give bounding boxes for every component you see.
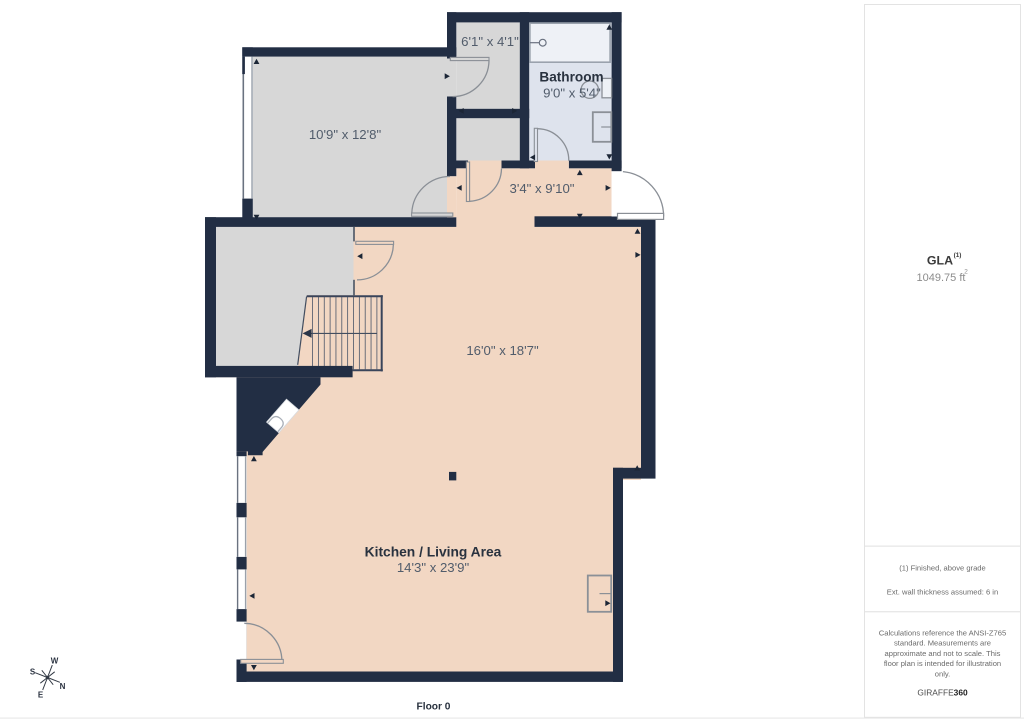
svg-text:1049.75 ft: 1049.75 ft [917, 272, 966, 284]
svg-text:approximate and not to scale.: approximate and not to scale. This [885, 649, 1001, 658]
svg-text:Bathroom: Bathroom [539, 70, 603, 85]
svg-text:Calculations reference the ANS: Calculations reference the ANSI-Z765 [879, 629, 1006, 638]
svg-text:standard. Measurements are: standard. Measurements are [894, 639, 991, 648]
svg-text:W: W [51, 657, 59, 666]
svg-text:3'4" x 9'10": 3'4" x 9'10" [510, 181, 575, 196]
svg-text:2: 2 [964, 269, 968, 276]
svg-text:floor plan is intended for ill: floor plan is intended for illustration [884, 659, 1001, 668]
svg-text:S: S [30, 668, 36, 677]
svg-text:16'0" x 18'7": 16'0" x 18'7" [466, 343, 539, 358]
svg-text:N: N [60, 682, 66, 691]
svg-text:6'1" x 4'1": 6'1" x 4'1" [461, 34, 519, 49]
svg-text:(1): (1) [954, 252, 962, 259]
svg-text:Kitchen / Living Area: Kitchen / Living Area [365, 545, 502, 560]
svg-text:GLA: GLA [927, 254, 953, 268]
svg-text:Floor 0: Floor 0 [417, 702, 451, 713]
svg-text:Ext. wall thickness assumed: 6: Ext. wall thickness assumed: 6 in [887, 588, 998, 597]
svg-text:only.: only. [935, 669, 950, 678]
svg-text:9'0" x 5'4": 9'0" x 5'4" [543, 86, 601, 101]
svg-text:10'9" x 12'8": 10'9" x 12'8" [309, 127, 382, 142]
svg-text:14'3" x 23'9": 14'3" x 23'9" [397, 560, 470, 575]
svg-text:E: E [38, 691, 44, 700]
svg-text:(1) Finished, above grade: (1) Finished, above grade [899, 564, 986, 573]
svg-text:GIRAFFE360: GIRAFFE360 [917, 687, 968, 697]
